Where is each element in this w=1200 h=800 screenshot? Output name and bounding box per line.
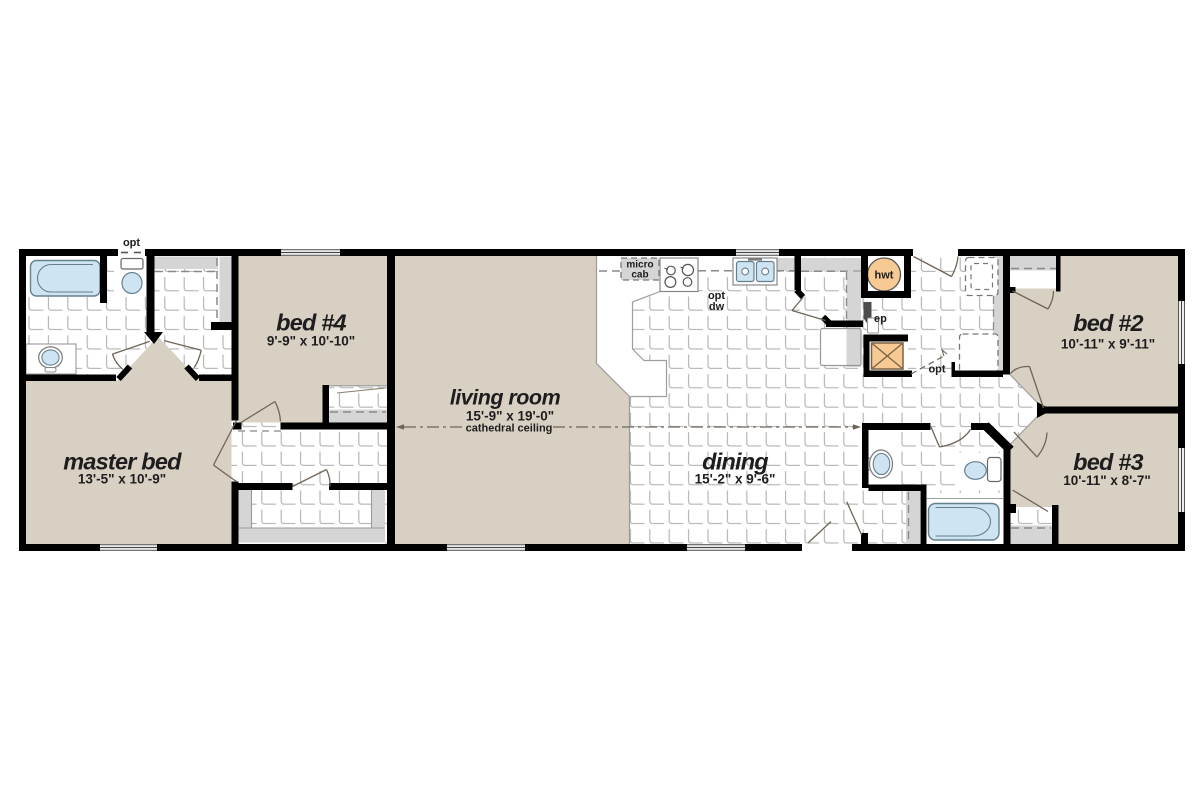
svg-text:13'-5" x 10'-9": 13'-5" x 10'-9" (78, 472, 166, 487)
svg-text:10'-11" x 9'-11": 10'-11" x 9'-11" (1061, 337, 1155, 352)
svg-text:dw: dw (709, 301, 725, 313)
svg-text:10'-11" x 8'-7": 10'-11" x 8'-7" (1063, 473, 1151, 488)
svg-text:hwt: hwt (875, 270, 894, 282)
svg-text:cab: cab (631, 270, 648, 281)
svg-text:ep: ep (874, 313, 887, 325)
svg-text:opt: opt (928, 364, 945, 376)
svg-text:15'-2" x 9'-6": 15'-2" x 9'-6" (695, 472, 776, 487)
svg-text:cathedral ceiling: cathedral ceiling (466, 423, 553, 435)
svg-text:living room: living room (450, 386, 561, 410)
svg-text:9'-9" x 10'-10": 9'-9" x 10'-10" (267, 334, 355, 349)
svg-text:opt: opt (123, 237, 140, 249)
svg-text:bed #3: bed #3 (1073, 449, 1143, 475)
svg-text:bed #4: bed #4 (276, 310, 346, 336)
svg-text:15'-9" x 19'-0": 15'-9" x 19'-0" (466, 409, 554, 424)
svg-text:bed #2: bed #2 (1073, 310, 1143, 336)
